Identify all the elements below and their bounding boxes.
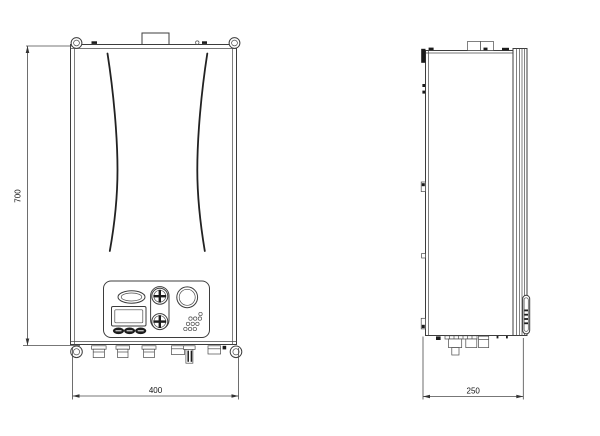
bottom-connections [92, 346, 227, 363]
pipe-stub [142, 346, 156, 358]
led-dot [188, 327, 191, 330]
mode-selector-knob[interactable] [177, 287, 198, 308]
side-view [421, 42, 530, 356]
boiler-technical-drawing: 700 400 250 [0, 0, 600, 436]
side-tick [506, 336, 508, 338]
top-vent-hole [196, 41, 199, 44]
control-panel [104, 281, 210, 338]
arrow-left-icon [423, 395, 430, 399]
pipe-stub [92, 346, 107, 358]
led-dot [199, 312, 202, 315]
screw-top-left-icon [71, 38, 82, 49]
clip-top [421, 49, 425, 63]
depth-dimension-label: 250 [467, 387, 481, 396]
pipe-stub [116, 346, 130, 358]
clip-bottom [421, 318, 425, 329]
panel-button[interactable] [124, 328, 135, 335]
screw-top-right-icon [229, 38, 240, 49]
side-pipe [466, 339, 477, 348]
drawing-canvas: 700 400 250 [0, 0, 600, 436]
led-dot [184, 327, 187, 330]
clip-dot [422, 84, 425, 87]
arrow-up-icon [26, 46, 30, 53]
led-dot [196, 322, 199, 325]
arrow-right-icon [516, 395, 523, 399]
side-valve-tab [436, 336, 441, 340]
clip-small [422, 254, 426, 259]
led-dot [193, 327, 196, 330]
led-dot [194, 317, 197, 320]
side-pipe [449, 339, 462, 348]
panel-button[interactable] [113, 328, 124, 335]
clip-dot [422, 91, 425, 94]
panel-button[interactable] [135, 328, 146, 335]
width-dimension-label: 400 [149, 386, 163, 395]
valve-tab [223, 346, 227, 350]
panel-button-row [113, 328, 146, 335]
pipe-stub [208, 346, 221, 354]
side-pipe-deep [479, 336, 489, 347]
led-dot [191, 322, 194, 325]
wall-bracket-capsule [523, 295, 530, 334]
led-dot [186, 322, 189, 325]
side-flue-collar [468, 42, 494, 51]
back-panel [513, 49, 527, 336]
side-tick [497, 336, 499, 338]
arrow-down-icon [26, 339, 30, 346]
temperature-knob-top[interactable] [152, 288, 168, 304]
condensate-siphon [184, 346, 196, 363]
gas-connection [172, 346, 185, 355]
arrow-right-icon [232, 394, 239, 398]
clip-middle [421, 182, 425, 192]
top-clip-right [202, 41, 207, 44]
side-front-clips [421, 49, 425, 329]
top-clip-left [92, 41, 98, 44]
flue-collar [142, 33, 169, 45]
led-dot [189, 317, 192, 320]
side-casing-outline [426, 51, 514, 336]
led-dot [198, 317, 201, 320]
height-dimension-label: 700 [14, 189, 23, 203]
screw-bottom-right-icon [230, 346, 242, 358]
temperature-knob-bottom[interactable] [152, 314, 168, 330]
front-view [71, 33, 242, 363]
side-bottom-connections [436, 336, 508, 355]
arrow-left-icon [73, 394, 80, 398]
side-siphon [452, 348, 459, 355]
side-casing [426, 51, 514, 336]
